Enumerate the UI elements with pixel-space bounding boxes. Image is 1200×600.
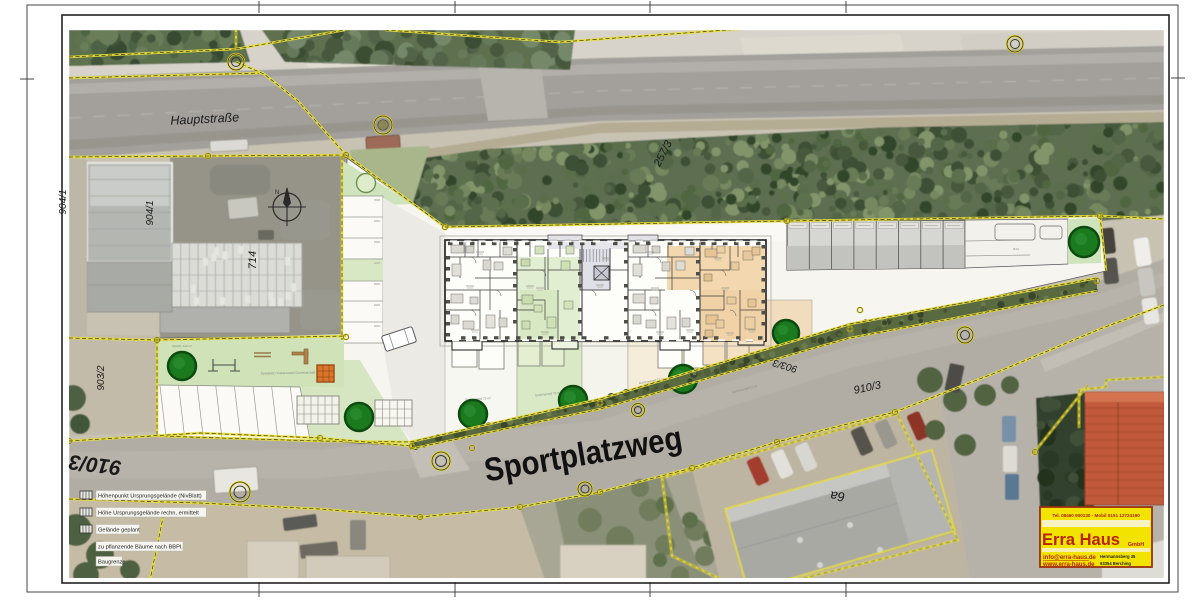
svg-text:GmbH: GmbH xyxy=(1128,542,1145,548)
svg-text:903/2: 903/2 xyxy=(96,365,107,390)
svg-text:6a: 6a xyxy=(830,488,846,504)
svg-text:Erra Haus: Erra Haus xyxy=(1042,531,1120,549)
svg-text:Höhe Ursprungsgelände rechn. e: Höhe Ursprungsgelände rechn. ermittelt xyxy=(98,511,199,517)
svg-text:info@erra-haus.de: info@erra-haus.de xyxy=(1043,555,1097,561)
svg-text:B14: B14 xyxy=(1013,247,1019,251)
svg-text:Höhenpunkt Ursprungsgelände (N: Höhenpunkt Ursprungsgelände (NivBlatt) xyxy=(98,494,202,500)
svg-text:Hermannsberg 35: Hermannsberg 35 xyxy=(1100,554,1136,559)
svg-text:93354 Berching: 93354 Berching xyxy=(1100,561,1131,566)
svg-text:904/1: 904/1 xyxy=(145,200,156,225)
svg-text:714: 714 xyxy=(247,251,259,269)
svg-text:Baugrenze: Baugrenze xyxy=(98,560,126,566)
svg-text:904/1: 904/1 xyxy=(58,189,69,214)
svg-text:Tel. 08460 900130 - Mobil 01: Tel. 08460 900130 - Mobil 0151 12724190 xyxy=(1052,513,1140,518)
svg-text:zu pflanzende Bäume nach BBPl.: zu pflanzende Bäume nach BBPl. xyxy=(98,545,183,551)
svg-text:N: N xyxy=(275,190,279,196)
svg-text:Spielpl. 120 m²: Spielpl. 120 m² xyxy=(172,344,192,348)
svg-text:Gelände geplant: Gelände geplant xyxy=(98,528,140,534)
